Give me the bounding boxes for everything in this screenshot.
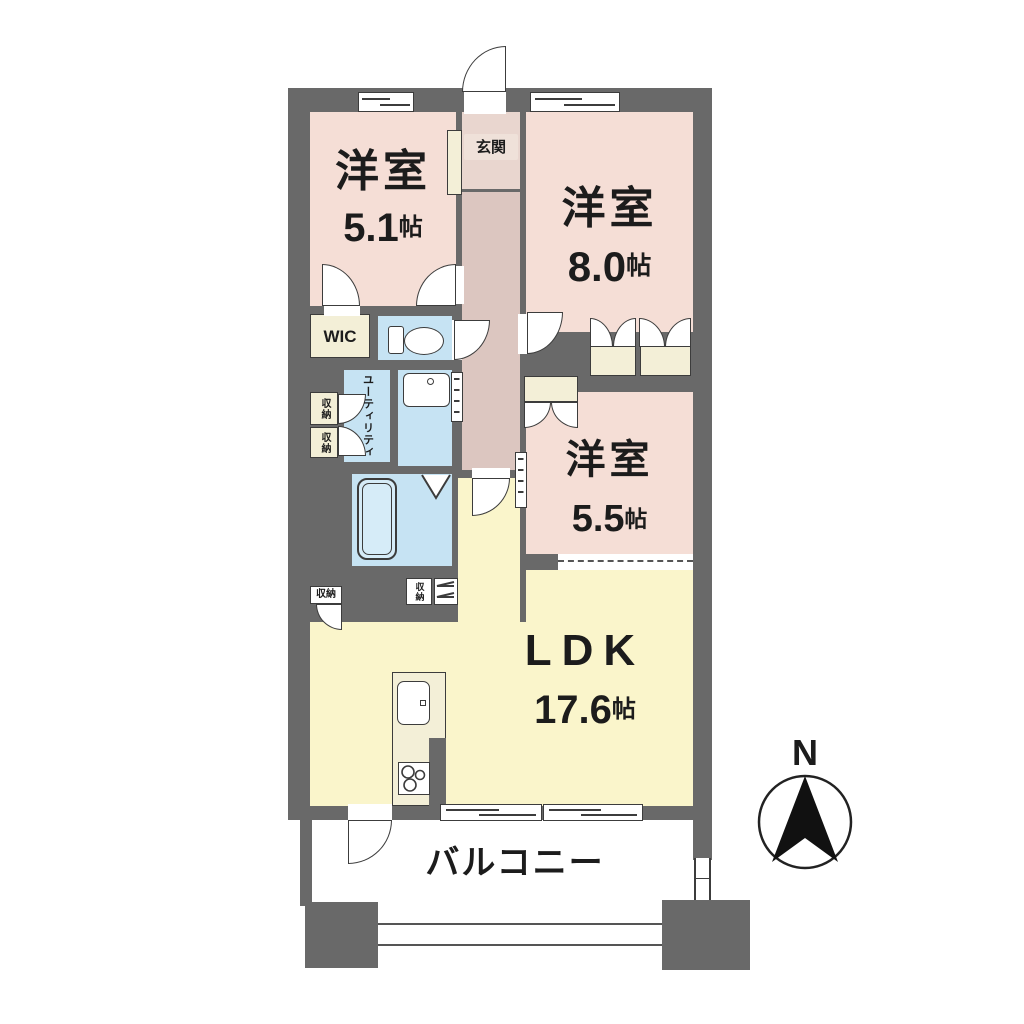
entrance-door-arc: [462, 46, 506, 92]
balcony-right-wall: [693, 820, 712, 860]
bath-folding-door-icon: [420, 474, 452, 500]
storage-ldk-mid-label: 収納: [409, 580, 429, 603]
storage-ldk-mid-folding-door-icon: [434, 578, 458, 605]
balcony-left-wall: [300, 820, 312, 906]
bedroom-8-0-size: 8.0帖: [528, 244, 691, 290]
pillar-right: [662, 900, 750, 970]
balcony-label: バルコニー: [350, 842, 680, 884]
compass-icon: [756, 770, 854, 874]
window-bedroom-5-1: [358, 92, 414, 112]
bedroom-8-0-name: 洋室: [528, 184, 691, 234]
sink-icon: [403, 373, 450, 407]
wic-label: WIC: [310, 324, 370, 348]
closet-80-right: [640, 346, 691, 376]
washroom-sliding-door: [451, 372, 463, 422]
entrance-label: 玄関: [464, 134, 518, 160]
closet-55: [524, 376, 578, 402]
storage-left-lower-label: 収納: [314, 429, 334, 456]
balcony-railing-line: [378, 944, 662, 946]
bedroom-5-1-size: 5.1帖: [312, 206, 454, 250]
balcony-window-right: [543, 804, 643, 821]
bedroom-5-5-sliding-door: [515, 452, 527, 508]
balcony-railing-line: [378, 923, 662, 925]
toilet-tank-icon: [388, 326, 404, 354]
toilet-bowl-icon: [404, 327, 444, 355]
closet-80-left: [590, 346, 636, 376]
balcony-partition-panel: [694, 858, 711, 902]
bedroom-5-5-size: 5.5帖: [528, 498, 691, 540]
bedroom-5-5-name: 洋室: [528, 436, 691, 484]
storage-ldk-left-label: 収納: [311, 588, 341, 602]
balcony-window-left: [440, 804, 542, 821]
kitchen-faucet-icon: [420, 700, 426, 706]
compass-north-label: N: [780, 736, 830, 770]
stove-icon: [398, 762, 430, 795]
window-bedroom-8-0: [530, 92, 620, 112]
utility-label: ユーティリティ: [356, 372, 378, 460]
ldk-size: 17.6帖: [480, 688, 690, 732]
bathtub-icon: [357, 478, 397, 560]
room-ldk-right: [526, 570, 693, 626]
bedroom-5-1-name: 洋室: [312, 146, 454, 198]
entrance-opening: [464, 90, 506, 114]
floor-plan: 洋室 5.1帖 洋室 8.0帖 洋室 5.5帖 LDK 17.6帖 バルコニー …: [0, 0, 1024, 1024]
bedroom-5-5-open-partition: [558, 554, 693, 570]
pillar-left: [305, 902, 378, 968]
ldk-name: LDK: [480, 628, 690, 674]
sink-faucet-icon: [427, 378, 434, 385]
kitchen-wall-stub: [429, 738, 446, 806]
storage-left-upper-label: 収納: [314, 394, 334, 423]
